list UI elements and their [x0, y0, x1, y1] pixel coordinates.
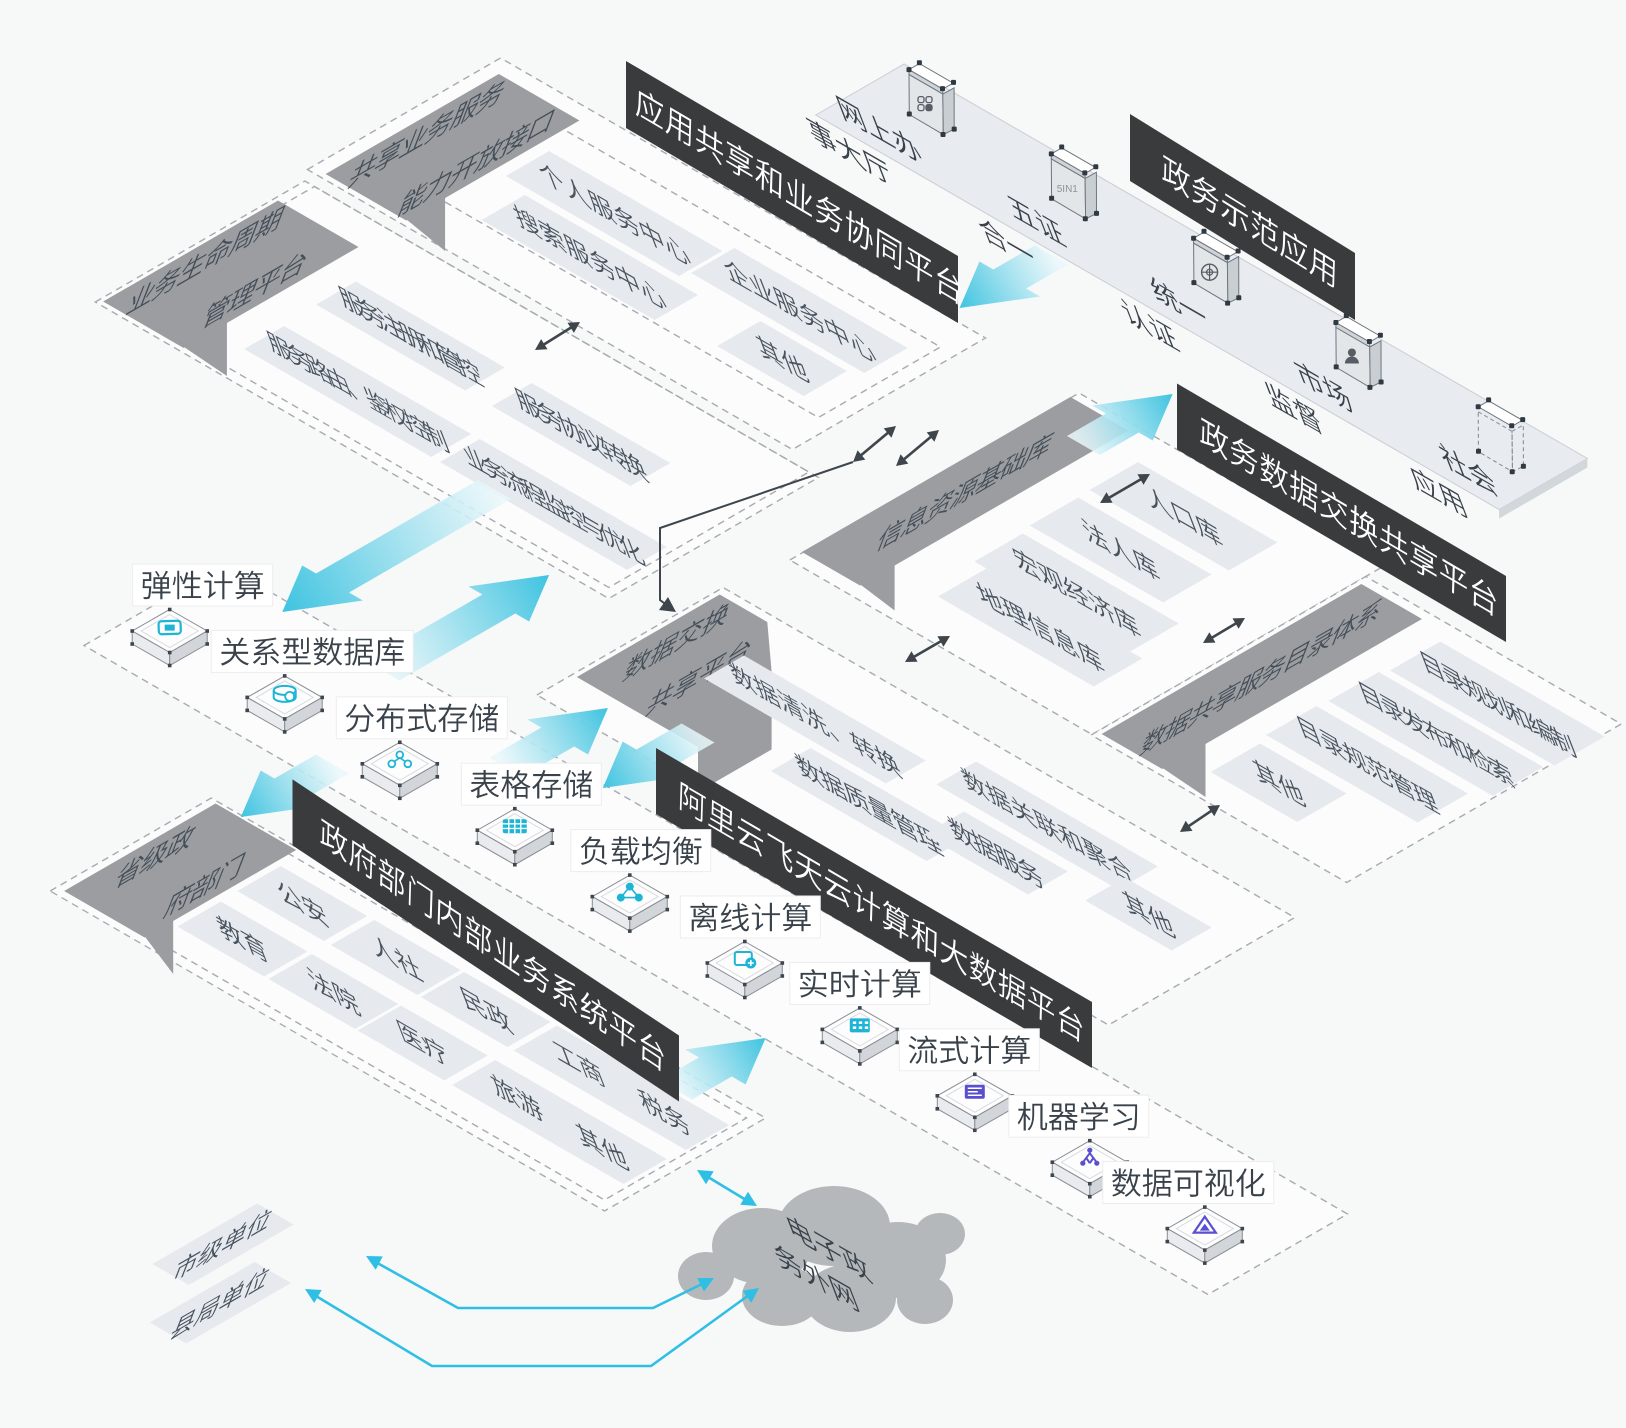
svg-text:5IN1: 5IN1: [1057, 184, 1079, 195]
